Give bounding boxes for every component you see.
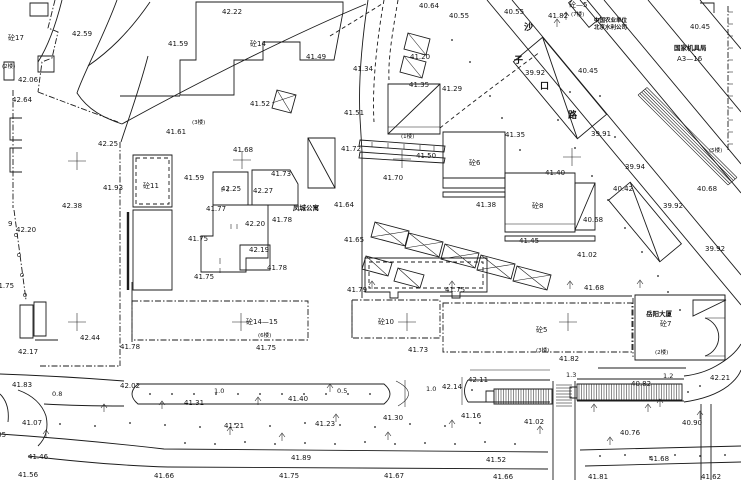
point-marker: [624, 454, 626, 456]
point-marker: [699, 385, 701, 387]
map-line: [308, 138, 335, 188]
building-number-label: 砼5: [536, 325, 547, 334]
point-marker: [699, 455, 701, 457]
elevation-label: 41.68: [649, 455, 669, 463]
map-line: [553, 381, 575, 480]
elevation-label: 41.75: [256, 344, 276, 352]
point-marker: [514, 443, 516, 445]
elevation-label: 41.35: [505, 131, 525, 139]
point-marker: [599, 95, 601, 97]
elevation-label: 41.35: [409, 81, 429, 89]
elevation-label: 40.45: [578, 67, 598, 75]
elevation-label: 41.02: [524, 418, 544, 426]
elevation-label: 39.92: [705, 245, 725, 253]
point-marker: [569, 91, 571, 93]
elevation-label: 41.78: [267, 264, 287, 272]
tree-icon: [279, 433, 285, 441]
elevation-label: 40.64: [419, 2, 440, 10]
elevation-label: 42.25: [221, 185, 241, 193]
map-line: [365, 258, 487, 298]
point-marker: [94, 425, 96, 427]
elevation-label: 42.05: [0, 431, 6, 439]
elevation-label: 42.20: [16, 226, 36, 234]
map-line: [18, 390, 47, 446]
point-marker: [325, 393, 327, 395]
map-line: [121, 56, 148, 142]
elevation-label: 40.68: [583, 216, 603, 224]
point-marker: [679, 309, 681, 311]
map-line: [133, 155, 172, 207]
map-line: [443, 192, 505, 197]
tree-icon: [591, 404, 597, 412]
elevation-label: 41.56: [18, 471, 39, 479]
fence-post-marker: [17, 253, 20, 256]
map-line: [38, 0, 62, 62]
point-marker: [193, 393, 195, 395]
dimension-label: 1.3: [566, 371, 576, 379]
map-line: [705, 318, 719, 356]
elevation-label: 39.92: [663, 202, 683, 210]
grid-cross-icon: [398, 313, 416, 331]
elevation-label: 41.40: [545, 169, 565, 177]
elevation-label: 41.49: [306, 53, 326, 61]
dimension-label: 1.2: [663, 372, 673, 380]
map-line: [638, 95, 728, 185]
tree-icon: [637, 280, 643, 288]
elevation-label: 42.11: [468, 376, 488, 384]
point-marker: [624, 227, 626, 229]
dimension-label: 0.8: [52, 390, 62, 398]
tree-icon: [159, 401, 165, 409]
elevation-label: 41.77: [206, 205, 226, 213]
elevation-label: 42.19: [249, 246, 269, 254]
map-line: [396, 381, 409, 406]
tree-icon: [449, 420, 455, 428]
building-number-label: 砼14: [250, 39, 266, 48]
point-marker: [479, 422, 481, 424]
building-number-label: 砼11: [143, 181, 159, 190]
map-line: [0, 434, 548, 452]
point-marker: [489, 95, 491, 97]
elevation-label: 41.75: [279, 472, 299, 480]
point-marker: [614, 136, 616, 138]
grid-cross-icon: [563, 148, 581, 166]
map-line: [77, 0, 122, 124]
elevation-label: 41.75: [188, 235, 208, 243]
elevation-label: 40.55: [504, 8, 524, 16]
point-marker: [59, 423, 61, 425]
map-line: [88, 2, 150, 66]
elevation-label: 41.16: [461, 412, 482, 420]
floor-count-label: (2楼): [655, 348, 668, 356]
elevation-label: 41.61: [166, 128, 186, 136]
elevation-label: 40.45: [690, 23, 710, 31]
map-line: [10, 118, 22, 140]
elevation-label: 41.81: [588, 473, 608, 480]
point-marker: [281, 393, 283, 395]
map-line: [580, 446, 741, 450]
elevation-label: 41.72: [341, 145, 361, 153]
point-marker: [304, 442, 306, 444]
point-marker: [184, 442, 186, 444]
point-marker: [304, 422, 306, 424]
map-line: [34, 302, 46, 336]
boundary-dashed-line: [373, 0, 384, 122]
point-marker: [599, 455, 601, 457]
elevation-label: 41.45: [519, 237, 539, 245]
point-marker: [674, 454, 676, 456]
map-line: [30, 3, 48, 16]
elevation-label: 40.82: [631, 380, 651, 388]
map-line: [0, 374, 124, 381]
building-number-label: 砼14—15: [246, 317, 278, 326]
elevation-label: 41.46: [28, 453, 49, 461]
point-marker: [237, 393, 239, 395]
point-marker: [641, 251, 643, 253]
tree-icon: [327, 384, 333, 392]
grid-cross-icon: [68, 313, 86, 331]
point-marker: [724, 454, 726, 456]
map-line: [133, 210, 172, 290]
survey-map-canvas: 42.2242.59砼1741.59砼14(2楼)42.0642.6441.52…: [0, 0, 741, 480]
building-number-label: 砼—5: [569, 0, 587, 9]
building-number-label: 砼10: [378, 317, 394, 326]
elevation-label: 41.30: [383, 414, 403, 422]
point-marker: [339, 424, 341, 426]
point-marker: [394, 443, 396, 445]
elevation-label: 41.40: [288, 395, 308, 403]
elevation-label: 41.02: [577, 251, 597, 259]
point-marker: [364, 441, 366, 443]
dimension-label: 1.0: [214, 387, 224, 395]
tree-icon: [537, 426, 543, 434]
elevation-label: 39.92: [525, 69, 545, 77]
map-line: [388, 84, 440, 134]
map-line: [28, 456, 548, 469]
map-line: [231, 224, 237, 229]
tree-icon: [554, 19, 560, 27]
point-marker: [607, 199, 609, 201]
building-number-label: 砼8: [532, 201, 543, 210]
elevation-label: 41.78: [272, 216, 292, 224]
point-marker: [274, 443, 276, 445]
building-name-label: 凤城公寓: [293, 203, 320, 212]
boundary-dashed-line: [330, 4, 382, 36]
tree-icon: [385, 432, 391, 440]
elevation-label: 42.64: [12, 96, 33, 104]
map-line: [408, 33, 426, 55]
elevation-label: 41.79: [347, 286, 367, 294]
floor-count-label: (2楼): [2, 62, 15, 70]
elevation-label: 41.29: [442, 85, 462, 93]
grid-cross-icon: [559, 313, 577, 331]
elevation-label: 41.70: [383, 174, 403, 182]
elevation-label: 42.20: [245, 220, 265, 228]
point-marker: [269, 425, 271, 427]
building-name-label: 国家机具局: [674, 43, 707, 52]
street-name-char: 口: [540, 81, 549, 92]
elevation-label: 41.51: [344, 109, 364, 117]
map-line: [647, 88, 737, 178]
point-marker: [259, 393, 261, 395]
elevation-label: 42.38: [62, 202, 82, 210]
dimension-label: 0.5: [337, 387, 347, 395]
floor-count-label: (3楼): [192, 118, 205, 126]
building-name-label: 岳阳大厦: [646, 309, 673, 318]
elevation-label: A3—16: [677, 55, 703, 63]
elevation-label: 39.91: [591, 130, 611, 138]
elevation-label: 42.44: [80, 334, 101, 342]
map-line: [643, 91, 733, 181]
elevation-label: 41.68: [584, 284, 604, 292]
elevation-label: 41.52: [250, 100, 270, 108]
street-name-char: 子: [514, 55, 523, 66]
point-marker: [347, 393, 349, 395]
elevation-label: 41.68: [233, 146, 253, 154]
point-marker: [687, 391, 689, 393]
point-marker: [444, 425, 446, 427]
point-marker: [591, 175, 593, 177]
elevation-label: 41.75: [194, 273, 214, 281]
point-marker: [374, 426, 376, 428]
boundary-dashed-line: [136, 158, 169, 204]
elevation-label: 41.62: [701, 473, 721, 480]
elevation-label: 41.07: [22, 419, 42, 427]
point-marker: [409, 423, 411, 425]
elevation-label: 41.20: [410, 53, 430, 61]
point-marker: [334, 443, 336, 445]
point-marker: [471, 389, 473, 391]
map-line: [705, 318, 725, 356]
elevation-label: 41.67: [384, 472, 404, 480]
elevation-label: 41.73: [271, 170, 291, 178]
elevation-label: 41.50: [416, 152, 436, 160]
building-number-label: 砼7: [660, 319, 671, 328]
elevation-label: 42.59: [72, 30, 92, 38]
dimension-label: 1.0: [426, 385, 436, 393]
boundary-dashed-line: [38, 92, 118, 122]
drawing-viewport: 42.2242.59砼1741.59砼14(2楼)42.0642.6441.52…: [0, 0, 741, 480]
elevation-label: 41.82: [548, 12, 568, 20]
elevation-label: 41.34: [353, 65, 374, 73]
point-marker: [519, 149, 521, 151]
point-marker: [454, 443, 456, 445]
point-marker: [129, 422, 131, 424]
elevation-label: 39.94: [625, 163, 646, 171]
elevation-label: 42.27: [253, 187, 273, 195]
map-line: [693, 300, 726, 316]
elevation-label: 41.83: [12, 381, 32, 389]
institution-name-label: 北京水利公司: [594, 23, 627, 31]
point-marker: [557, 119, 559, 121]
point-marker: [451, 39, 453, 41]
map-line: [570, 387, 577, 398]
elevation-label: 41.59: [168, 40, 188, 48]
elevation-label: 42.06: [18, 76, 39, 84]
street-name-char: 沙: [524, 22, 533, 33]
elevation-label: 9: [8, 220, 12, 228]
elevation-label: 41.23: [315, 420, 335, 428]
street-name-char: 路: [568, 109, 578, 121]
elevation-label: 41.64: [334, 201, 355, 209]
building-number-label: 砼6: [469, 158, 481, 167]
grid-cross-icon: [393, 150, 411, 168]
tree-icon: [645, 404, 651, 412]
elevation-label: 40.55: [449, 12, 469, 20]
point-marker: [667, 291, 669, 293]
point-marker: [574, 147, 576, 149]
elevation-label: 40.90: [682, 419, 702, 427]
elevation-label: 41.59: [184, 174, 204, 182]
map-line: [20, 305, 33, 338]
institution-name-label: 中国农业单位: [594, 16, 628, 24]
elevation-label: 42.22: [222, 8, 242, 16]
elevation-label: 40.42: [613, 185, 633, 193]
elevation-label: 41.38: [476, 201, 496, 209]
map-line: [630, 182, 660, 262]
elevation-label: 41.78: [120, 343, 140, 351]
elevation-label: 41.73: [408, 346, 428, 354]
point-marker: [369, 393, 371, 395]
map-line: [44, 404, 124, 406]
map-line: [635, 295, 725, 360]
elevation-label: 41.31: [184, 399, 204, 407]
elevation-label: 41.82: [559, 355, 579, 363]
grid-cross-icon: [68, 152, 86, 170]
tree-icon: [697, 411, 703, 419]
point-marker: [657, 275, 659, 277]
tree-icon: [567, 281, 573, 289]
point-marker: [199, 426, 201, 428]
map-line: [0, 394, 8, 422]
elevation-label: 41.21: [224, 422, 244, 430]
map-line: [122, 4, 366, 124]
tree-icon: [101, 404, 107, 412]
map-line: [201, 205, 268, 272]
elevation-label: 42.02: [120, 382, 140, 390]
elevation-label: 40.76: [620, 429, 641, 437]
map-line: [180, 2, 343, 95]
point-marker: [424, 442, 426, 444]
map-line: [10, 148, 22, 172]
elevation-label: 41.65: [344, 236, 364, 244]
elevation-label: 42.17: [18, 348, 38, 356]
building-number-label: 砼17: [8, 33, 24, 42]
tree-icon: [607, 437, 613, 445]
boundary-dashed-line: [389, 0, 398, 80]
point-marker: [469, 61, 471, 63]
boundary-dashed-line: [14, 210, 26, 300]
elevation-label: 41.93: [103, 184, 123, 192]
point-marker: [214, 443, 216, 445]
elevation-label: 41.89: [291, 454, 311, 462]
boundary-dashed-line: [352, 300, 440, 338]
elevation-label: 42.14: [442, 383, 463, 391]
point-marker: [484, 441, 486, 443]
floor-count-label: (7楼): [571, 10, 584, 18]
point-marker: [164, 424, 166, 426]
floor-count-label: (1楼): [401, 132, 414, 140]
floor-count-label: (5楼): [709, 146, 722, 154]
point-marker: [244, 441, 246, 443]
elevation-label: 40.68: [697, 185, 717, 193]
point-marker: [149, 393, 151, 395]
elevation-label: 42.21: [710, 374, 730, 382]
map-line: [359, 0, 368, 152]
elevation-label: 41.66: [154, 472, 175, 480]
elevation-label: 42.25: [98, 140, 118, 148]
floor-count-label: (3楼): [536, 346, 549, 354]
elevation-label: 41.75: [0, 282, 14, 290]
elevation-label: 41.66: [493, 473, 514, 480]
point-marker: [501, 117, 503, 119]
boundary-dashed-line: [132, 301, 308, 340]
elevation-label: 41.75: [445, 286, 465, 294]
floor-count-label: (6楼): [258, 331, 271, 339]
map-line: [701, 404, 711, 480]
point-marker: [171, 393, 173, 395]
map-line: [486, 391, 494, 402]
elevation-label: 41.52: [486, 456, 506, 464]
